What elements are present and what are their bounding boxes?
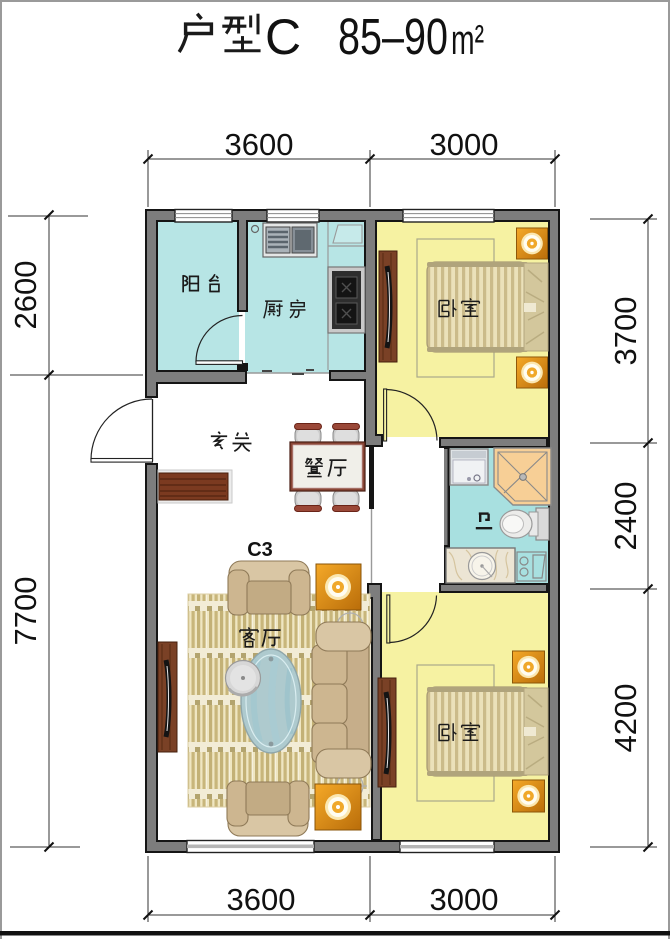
svg-text:4200: 4200 xyxy=(608,684,643,753)
svg-text:3600: 3600 xyxy=(227,882,296,917)
svg-text:2600: 2600 xyxy=(8,261,43,330)
svg-text:C3: C3 xyxy=(247,539,273,561)
svg-text:C: C xyxy=(265,9,301,65)
svg-text:3600: 3600 xyxy=(225,127,294,162)
svg-text:3700: 3700 xyxy=(608,297,643,366)
svg-text:3000: 3000 xyxy=(430,127,499,162)
svg-text:3000: 3000 xyxy=(430,882,499,917)
svg-text:85–90: 85–90 xyxy=(338,8,448,65)
svg-text:m²: m² xyxy=(451,16,484,63)
svg-text:2400: 2400 xyxy=(608,482,643,551)
svg-text:7700: 7700 xyxy=(8,577,43,646)
